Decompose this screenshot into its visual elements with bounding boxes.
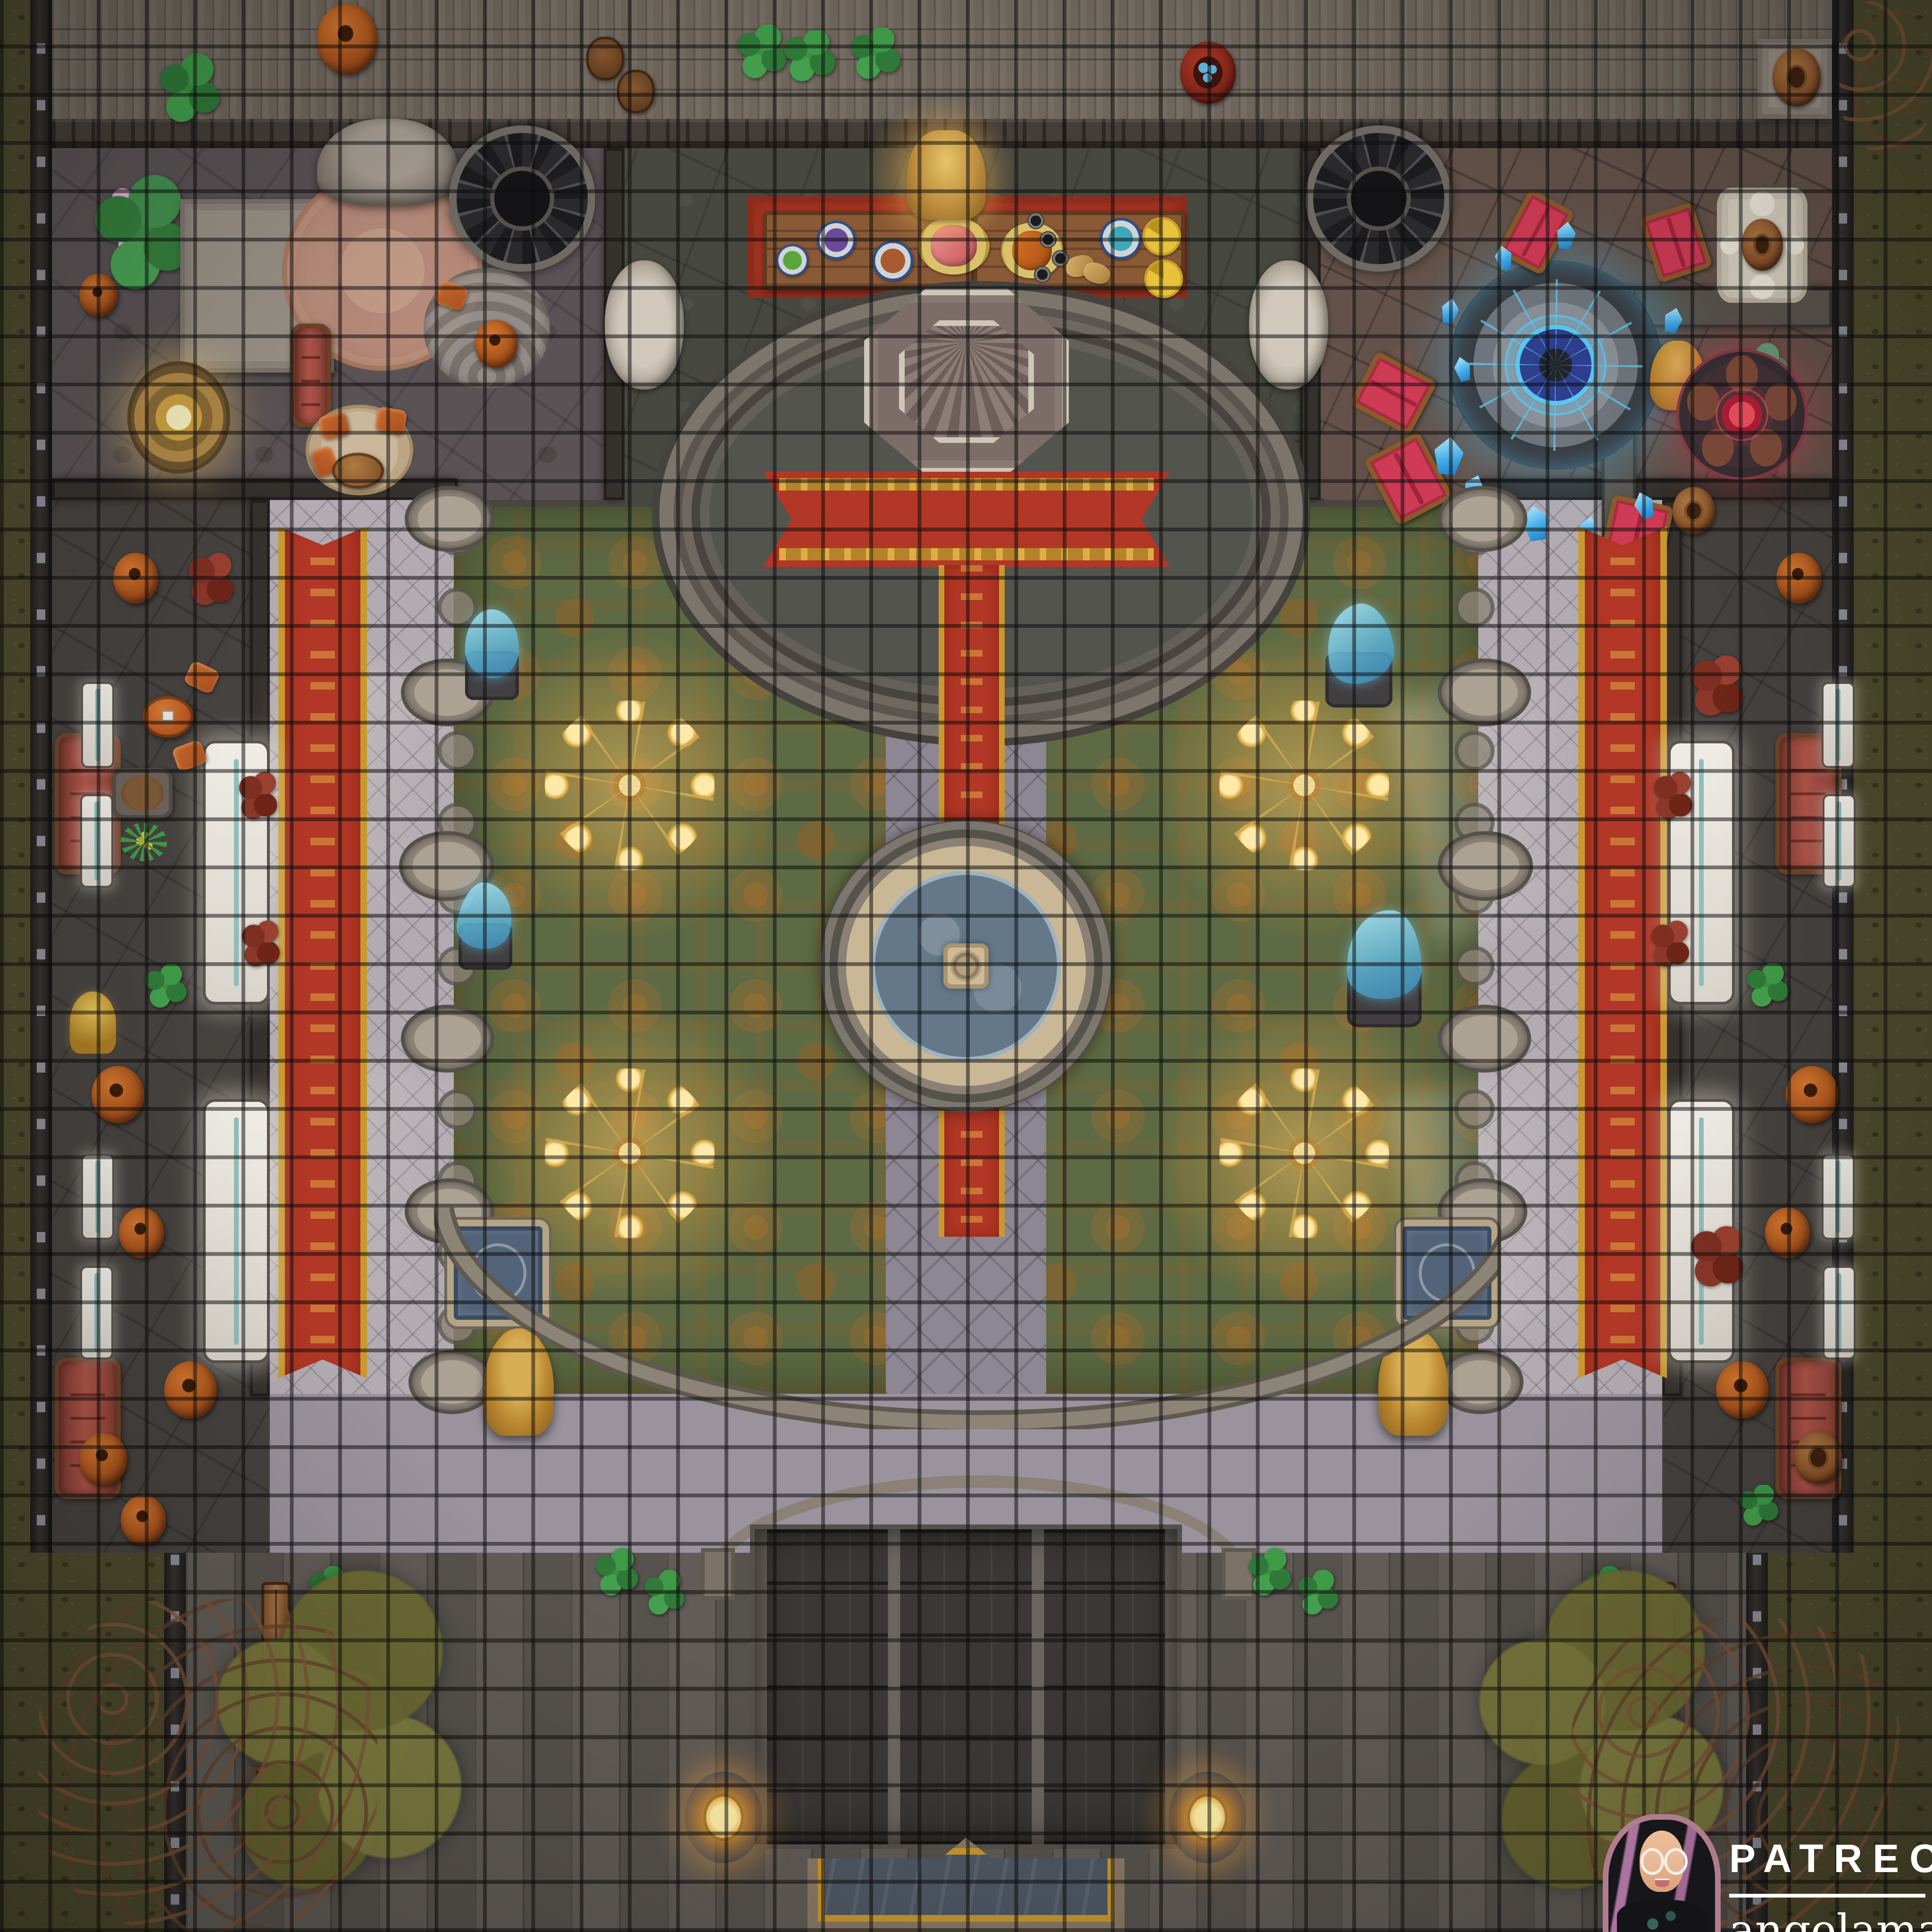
potted-plant — [844, 27, 905, 82]
clay-pot — [79, 274, 118, 317]
copper-pot — [1673, 487, 1715, 535]
clay-pot — [121, 1495, 166, 1545]
tea-table — [332, 453, 384, 489]
plate-of-peas — [776, 244, 808, 276]
plate-of-grapes — [817, 221, 856, 259]
cheese-wheel — [1142, 217, 1181, 256]
floor-cushion — [375, 406, 408, 435]
tree-roots — [1840, 0, 1932, 151]
roast-bird-platter — [1001, 223, 1063, 278]
potted-plant — [591, 1548, 641, 1599]
avatar-glasses-left — [1641, 1848, 1664, 1875]
spiral-staircase — [1306, 125, 1452, 272]
golden-harp — [70, 991, 116, 1054]
column-medallion — [412, 1354, 491, 1410]
potted-plant — [1293, 1570, 1341, 1618]
brazier-flame — [685, 1772, 762, 1863]
wall-ritual-bottom — [1479, 478, 1832, 500]
patreon-label: PATREON — [1729, 1836, 1932, 1882]
clay-pot — [317, 4, 377, 75]
artist-handle-label: angelamaps — [1729, 1905, 1932, 1932]
wall-window — [81, 1154, 114, 1240]
reading-table — [142, 696, 193, 738]
red-shrub — [1687, 1221, 1749, 1292]
golden-wall-statue — [907, 130, 986, 220]
chandelier — [545, 1068, 715, 1238]
glazed-pot — [1180, 42, 1236, 104]
potted-plant — [1243, 1548, 1294, 1599]
brazier-bowl — [1741, 219, 1783, 271]
spirit-unicorn-statue — [1338, 910, 1431, 1027]
spiral-staircase — [449, 125, 595, 272]
column-medallion — [405, 1008, 491, 1069]
potted-plant — [1734, 1485, 1782, 1528]
wall-window — [1822, 682, 1855, 768]
column-medallion — [1441, 1008, 1527, 1069]
drinking-cup — [1040, 231, 1057, 248]
column-medallion — [1441, 1354, 1520, 1410]
planter-bowl — [112, 768, 173, 819]
tree-roots — [38, 1599, 377, 1932]
glowing-window — [203, 1099, 270, 1363]
marble-ornament — [1249, 260, 1328, 390]
fountain-spout — [943, 943, 989, 989]
potted-plant — [1741, 963, 1792, 1009]
wall-window — [1823, 1266, 1856, 1359]
wall-window — [80, 794, 113, 888]
red-shrub — [185, 548, 238, 610]
promenade-top — [52, 0, 1832, 121]
wall-window — [81, 682, 114, 768]
gargoyle-statue — [317, 119, 458, 206]
column-medallion — [408, 490, 491, 548]
outer-wall-left — [30, 0, 52, 1553]
teleportation-circle — [1449, 260, 1662, 470]
drinking-cup — [1027, 212, 1044, 229]
royal-banner-carpet — [763, 472, 1170, 567]
spirit-dolphin-statue — [452, 883, 519, 970]
spirit-dragon-statue — [458, 609, 525, 700]
barrel — [617, 70, 655, 113]
potted-plant — [640, 1570, 688, 1618]
clay-pot — [113, 553, 158, 604]
brazier-flame — [1169, 1772, 1246, 1863]
avatar-glasses-right — [1664, 1848, 1688, 1875]
clay-pot — [119, 1207, 164, 1258]
spirit-panther-statue — [1317, 605, 1401, 708]
column-medallion — [1441, 835, 1529, 897]
avatar-shirt — [1617, 1900, 1707, 1932]
plate-of-fish — [1100, 218, 1141, 259]
copper-cauldron — [1773, 48, 1821, 107]
plate-of-salad — [873, 241, 913, 281]
column-medallion — [1441, 662, 1527, 723]
wall-window — [1823, 794, 1856, 888]
clay-pot — [1786, 1066, 1839, 1124]
red-shrub — [1652, 767, 1695, 824]
drinking-cup — [1052, 250, 1069, 267]
battle-map: PATREON angelamaps — [0, 0, 1932, 1932]
clay-pot — [1716, 1361, 1769, 1419]
clay-pot — [79, 1433, 127, 1486]
map-layer — [0, 0, 1932, 1932]
blood-ritual-circle — [1676, 349, 1807, 480]
potted-plant — [776, 30, 841, 84]
clay-pot — [1765, 1207, 1810, 1258]
reflecting-pool — [447, 1220, 549, 1326]
clay-pot — [164, 1361, 217, 1419]
cheese-wheel — [1144, 259, 1183, 298]
copper-pot — [1794, 1431, 1842, 1484]
red-shrub — [1687, 650, 1749, 722]
red-shrub — [240, 916, 283, 972]
reflecting-pool — [1396, 1220, 1498, 1326]
potted-plant — [153, 53, 224, 127]
wall-window — [1822, 1154, 1855, 1240]
clay-pot — [1776, 553, 1822, 604]
red-shrub — [1649, 916, 1692, 972]
column-medallion — [1441, 490, 1524, 548]
chandelier — [1219, 700, 1389, 870]
red-couch — [291, 324, 331, 427]
chandelier — [1219, 1068, 1389, 1238]
watermark-divider — [1729, 1894, 1925, 1898]
artist-avatar — [1603, 1814, 1721, 1932]
watermark-text: PATREON angelamaps — [1729, 1836, 1932, 1932]
aisle-runner-left — [278, 526, 367, 1378]
potted-plant — [140, 964, 191, 1010]
chandelier — [545, 700, 715, 870]
roast-pig-platter — [918, 217, 990, 275]
avatar-smile — [1655, 1879, 1669, 1887]
spiky-plant — [121, 823, 167, 861]
clay-pot — [92, 1066, 144, 1124]
red-shrub — [237, 767, 280, 824]
barrel — [586, 37, 624, 80]
marble-ornament — [605, 260, 684, 390]
patreon-watermark: PATREON angelamaps — [1594, 1811, 1932, 1932]
throne-dais — [864, 289, 1069, 475]
gilded-fire-table — [127, 361, 230, 474]
clay-pot — [475, 320, 518, 368]
great-gate — [755, 1529, 1177, 1844]
drinking-cup — [1034, 266, 1051, 283]
wall-window — [80, 1266, 113, 1359]
